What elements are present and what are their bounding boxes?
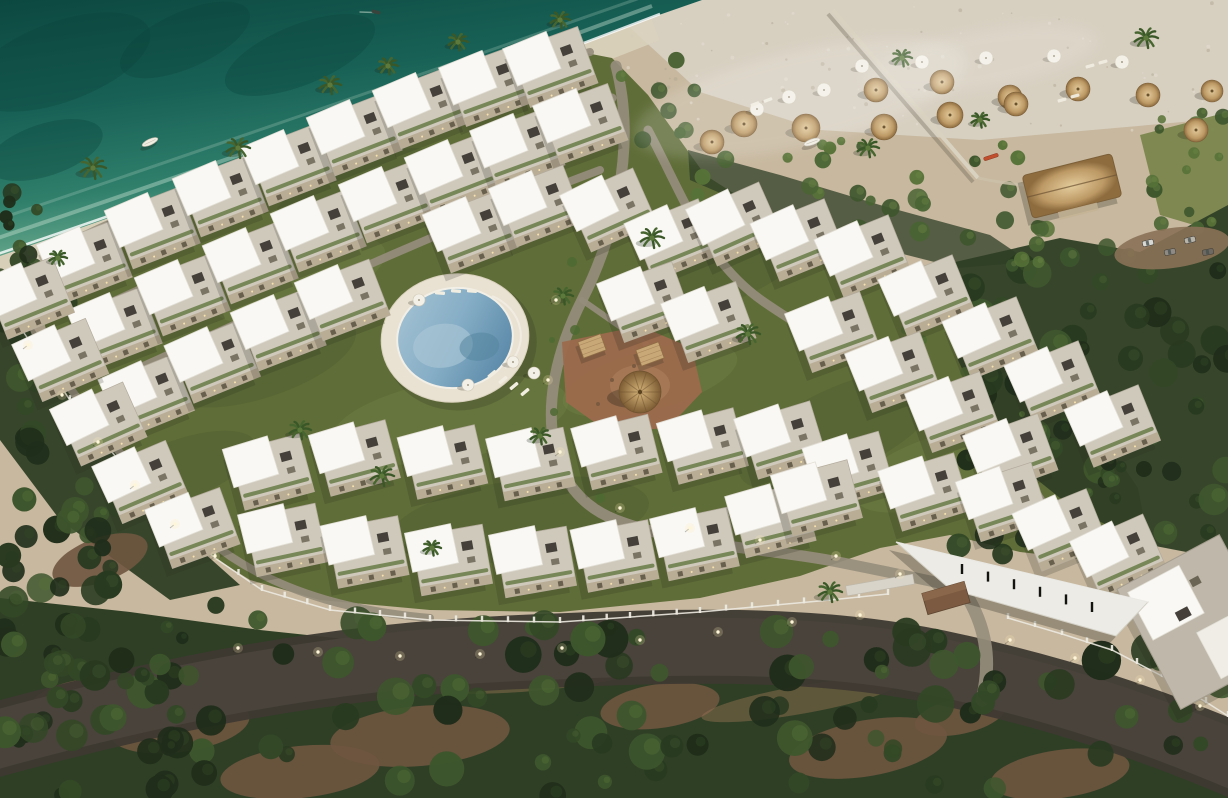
pebble-speckle: [727, 13, 731, 17]
pebble-speckle: [1060, 124, 1062, 126]
tree: [258, 734, 283, 759]
tree-highlight: [1211, 488, 1225, 502]
tree: [564, 672, 594, 702]
tree-highlight: [881, 667, 887, 673]
tree: [1136, 461, 1152, 477]
villa-window: [390, 570, 396, 576]
tree: [1088, 741, 1114, 767]
pebble-speckle: [958, 8, 962, 12]
pebble-speckle: [711, 50, 713, 52]
street-lamp: [1073, 656, 1076, 659]
tree: [75, 477, 93, 495]
umbrella-tip: [949, 114, 952, 117]
tree-highlight: [31, 717, 44, 730]
tree-highlight: [67, 511, 79, 523]
tree-highlight: [1201, 109, 1206, 114]
umbrella-tip: [883, 126, 886, 129]
pebble-speckle: [1193, 90, 1196, 93]
street-lamp: [546, 378, 549, 381]
canopy-flag-post: [961, 564, 963, 574]
palm-crown: [745, 331, 750, 336]
tree-highlight: [1125, 708, 1136, 719]
palm-crown: [90, 165, 95, 170]
fence-post: [777, 600, 779, 606]
villa-window: [265, 567, 271, 573]
tree-highlight: [8, 221, 13, 226]
street-lamp: [133, 483, 136, 486]
street-lamp: [558, 450, 561, 453]
street-lamp: [26, 343, 29, 346]
umbrella-tip: [1211, 90, 1214, 93]
tree: [15, 428, 44, 457]
street-lamp: [898, 572, 901, 575]
tree-highlight: [658, 85, 665, 92]
pebble-speckle: [913, 6, 915, 8]
tree-highlight: [585, 626, 601, 642]
fence-post: [606, 614, 608, 620]
tree-highlight: [1120, 463, 1125, 468]
tree-highlight: [967, 232, 974, 239]
tree-highlight: [476, 690, 485, 699]
villa-window: [536, 584, 542, 590]
tree-highlight: [762, 700, 776, 714]
parasol-tip: [467, 384, 469, 386]
tree-highlight: [336, 651, 350, 665]
parasol-tip: [512, 361, 514, 363]
tree: [85, 517, 112, 544]
tree-highlight: [166, 622, 172, 628]
tree: [117, 672, 134, 689]
tree: [178, 665, 199, 686]
street-lamp: [1138, 678, 1141, 681]
tree-highlight: [285, 748, 292, 755]
tree-highlight: [889, 202, 897, 210]
street-lamp: [560, 646, 563, 649]
tree: [996, 211, 1014, 229]
villa-window: [474, 579, 480, 585]
street-lamp: [236, 646, 239, 649]
palm-crown: [865, 145, 870, 150]
aerial-site-svg: [0, 0, 1228, 798]
street-lamp: [638, 638, 641, 641]
pebble-speckle: [627, 66, 630, 69]
tree-highlight: [820, 737, 832, 749]
tree-highlight: [69, 724, 83, 738]
plaza-furniture: [596, 402, 600, 406]
street-lamp: [60, 393, 63, 396]
pebble-speckle: [920, 31, 922, 33]
tree-highlight: [696, 737, 706, 747]
tree: [1162, 462, 1181, 481]
pebble-speckle: [1154, 73, 1158, 77]
tree-highlight: [1017, 152, 1024, 159]
tree-highlight: [58, 580, 67, 589]
tree-highlight: [1172, 738, 1181, 747]
tree-highlight: [822, 154, 829, 161]
tree-highlight: [422, 677, 433, 688]
pebble-speckle: [695, 74, 698, 77]
tree-highlight: [2, 721, 16, 735]
fence-post: [533, 617, 535, 623]
tree-highlight: [100, 508, 107, 515]
fence-post: [1136, 658, 1138, 664]
tree: [884, 739, 902, 757]
tree-highlight: [817, 189, 823, 195]
tree: [1184, 207, 1194, 217]
tree-highlight: [1186, 167, 1190, 171]
villa-window: [308, 558, 314, 564]
fence-post: [803, 597, 805, 603]
pebble-speckle: [1030, 123, 1032, 125]
tree-highlight: [1172, 320, 1185, 333]
tree-highlight: [957, 537, 968, 548]
tree-highlight: [918, 224, 927, 233]
tree-highlight: [181, 633, 187, 639]
tree: [788, 772, 809, 793]
street-lamp: [213, 554, 216, 557]
tree-highlight: [974, 157, 979, 162]
umbrella-tip: [1195, 129, 1198, 132]
tree-highlight: [1068, 250, 1077, 259]
villa: [486, 520, 577, 605]
tree-highlight: [202, 764, 214, 776]
fence-post: [481, 616, 483, 622]
tree-highlight: [541, 679, 555, 693]
hedge-bush: [570, 325, 580, 335]
pebble-speckle: [1192, 88, 1195, 91]
tree-highlight: [1087, 305, 1095, 313]
palm-crown: [297, 427, 302, 432]
tree-highlight: [1114, 494, 1119, 499]
fence-post: [379, 610, 381, 616]
villa-window: [556, 482, 562, 488]
tree-highlight: [1218, 154, 1222, 158]
tree-highlight: [550, 786, 562, 798]
tree-highlight: [1195, 401, 1202, 408]
villa-window: [677, 571, 683, 577]
pebble-speckle: [762, 42, 764, 44]
tree-highlight: [809, 180, 817, 188]
tree-highlight: [22, 491, 33, 502]
pebble-speckle: [916, 123, 919, 126]
fence-post: [699, 607, 701, 613]
tree-highlight: [397, 770, 410, 783]
tree: [917, 685, 954, 722]
tree-highlight: [572, 730, 578, 736]
pebble-speckle: [730, 56, 734, 60]
tree-highlight: [840, 138, 844, 142]
tree: [429, 751, 464, 786]
tree-highlight: [370, 616, 383, 629]
tree: [207, 597, 224, 614]
street-lamp: [1008, 638, 1011, 641]
tree-highlight: [256, 613, 265, 622]
palm-crown: [557, 17, 562, 22]
tree: [81, 576, 111, 606]
pebble-speckle: [792, 12, 795, 15]
fence-post: [582, 615, 584, 621]
fence-post: [404, 613, 406, 619]
tree-highlight: [10, 590, 24, 604]
hedge-bush: [567, 257, 577, 267]
tree-highlight: [1160, 218, 1167, 225]
fence-post: [237, 569, 239, 575]
tree-highlight: [157, 779, 170, 792]
villa: [402, 518, 493, 603]
pebble-speckle: [1206, 45, 1210, 49]
tree: [1098, 238, 1116, 256]
palm-crown: [560, 293, 565, 298]
fence-post: [725, 605, 727, 611]
street-lamp: [96, 440, 99, 443]
tree: [651, 664, 669, 682]
fence-post: [455, 615, 457, 621]
palm-crown: [827, 589, 832, 594]
street-lamp: [758, 538, 761, 541]
hedge-bush: [550, 408, 558, 416]
palm-crown: [55, 255, 60, 260]
pebble-speckle: [1106, 66, 1108, 68]
tree-highlight: [148, 742, 160, 754]
palm-crown: [379, 473, 384, 478]
villa-window: [430, 586, 436, 592]
pebble-speckle: [674, 77, 678, 81]
pebble-speckle: [1202, 101, 1204, 103]
pebble-speckle: [701, 42, 704, 45]
tree-highlight: [909, 633, 926, 650]
street-lamp: [618, 506, 621, 509]
tree-highlight: [1211, 218, 1216, 223]
roof-unit: [461, 540, 473, 551]
tree-highlight: [53, 655, 63, 665]
tree-highlight: [168, 741, 176, 749]
tree-highlight: [1159, 126, 1163, 130]
plaza-furniture: [610, 378, 614, 382]
fence-post: [652, 610, 654, 616]
pebble-speckle: [1002, 13, 1004, 15]
pebble-speckle: [1210, 1, 1214, 5]
palm-crown: [649, 235, 654, 240]
tree-highlight: [11, 186, 19, 194]
tree-highlight: [393, 683, 410, 700]
palm-crown: [327, 82, 332, 87]
parasol-tip: [533, 372, 535, 374]
tree-highlight: [24, 528, 34, 538]
tree-highlight: [621, 72, 626, 77]
tree-highlight: [1207, 526, 1214, 533]
street-lamp: [554, 298, 557, 301]
canopy-flag-post: [1013, 579, 1015, 589]
tree: [273, 643, 295, 665]
fence-post: [559, 617, 561, 623]
tree-highlight: [916, 172, 923, 179]
fence-post: [329, 605, 331, 611]
tree-highlight: [1135, 307, 1146, 318]
villa-window: [720, 562, 726, 568]
tree-highlight: [969, 277, 982, 290]
villa-window: [558, 581, 564, 587]
street-lamp: [1198, 704, 1201, 707]
tree-highlight: [1021, 254, 1028, 261]
tree-highlight: [39, 577, 52, 590]
tree-highlight: [1151, 177, 1157, 183]
tree-highlight: [1200, 358, 1208, 366]
roof-unit: [545, 542, 557, 553]
tree-highlight: [933, 778, 941, 786]
tree-highlight: [774, 619, 789, 634]
tree-highlight: [933, 632, 944, 643]
tree-highlight: [874, 651, 885, 662]
tree-highlight: [1109, 476, 1115, 482]
street-lamp: [173, 522, 176, 525]
canopy-flag-post: [1065, 594, 1067, 604]
tree-highlight: [542, 756, 549, 763]
tree: [433, 696, 462, 725]
street-lamp: [316, 650, 319, 653]
street-lamp: [688, 526, 691, 529]
tree-highlight: [1154, 301, 1167, 314]
tree-highlight: [1163, 524, 1174, 535]
palm-crown: [235, 145, 240, 150]
tree: [3, 196, 16, 209]
fence-post: [676, 609, 678, 615]
pebble-speckle: [1207, 49, 1210, 52]
tree-highlight: [644, 738, 660, 754]
pebble-speckle: [1011, 12, 1013, 14]
street-lamp: [398, 654, 401, 657]
tree: [60, 613, 85, 638]
tree: [861, 696, 878, 713]
tree-highlight: [617, 656, 629, 668]
tree-highlight: [1128, 349, 1139, 360]
pebble-speckle: [785, 21, 787, 23]
tree-highlight: [1035, 238, 1042, 245]
villa-window: [699, 566, 705, 572]
pebble-speckle: [664, 68, 666, 70]
tree: [1044, 669, 1075, 700]
tree-highlight: [629, 705, 642, 718]
villa-window: [513, 491, 519, 497]
pebble-speckle: [1154, 39, 1157, 42]
villa-window: [618, 578, 624, 584]
villa-window: [287, 562, 293, 568]
tree-highlight: [1051, 441, 1060, 450]
villa-window: [514, 588, 520, 594]
fence-post: [306, 598, 308, 604]
tree-highlight: [1099, 276, 1107, 284]
villa-window: [347, 579, 353, 585]
tree-highlight: [208, 710, 222, 724]
pebble-speckle: [1156, 45, 1158, 47]
villa-window: [452, 582, 458, 588]
aerial-resort-render: [0, 0, 1228, 798]
palm-crown: [429, 545, 434, 550]
pebble-speckle: [1168, 111, 1170, 113]
tree: [332, 703, 359, 730]
villa-window: [640, 574, 646, 580]
tree: [822, 631, 839, 648]
canopy-flag-post: [987, 572, 989, 582]
pebble-speckle: [1142, 72, 1144, 74]
fence-post: [887, 589, 889, 595]
tree-highlight: [27, 248, 35, 256]
tree-highlight: [922, 198, 929, 205]
pebble-speckle: [1058, 18, 1060, 20]
fence-post: [429, 615, 431, 621]
pebble-speckle: [1131, 129, 1134, 132]
fence-post: [629, 612, 631, 618]
tree-highlight: [452, 678, 465, 691]
tree-highlight: [12, 635, 24, 647]
pebble-speckle: [680, 23, 682, 25]
tree-highlight: [36, 206, 41, 211]
tree-highlight: [607, 623, 614, 630]
tree-highlight: [1002, 142, 1006, 146]
palm-crown: [977, 117, 982, 122]
palm-crown: [455, 39, 460, 44]
tree: [833, 706, 857, 730]
tree-highlight: [857, 187, 865, 195]
tree-highlight: [111, 708, 123, 720]
umbrella-tip: [1077, 88, 1080, 91]
tree-highlight: [56, 689, 66, 699]
fence-post: [261, 585, 263, 591]
pebble-speckle: [667, 85, 671, 89]
tree-highlight: [520, 641, 536, 657]
plaza-furniture: [632, 364, 636, 368]
tree: [695, 169, 711, 185]
street-lamp: [478, 652, 481, 655]
tree: [668, 52, 685, 69]
palm-crown: [385, 63, 390, 68]
gazebo-peak: [638, 390, 642, 394]
pebble-speckle: [771, 22, 773, 24]
villa-window: [368, 574, 374, 580]
street-lamp: [834, 554, 837, 557]
tree-highlight: [109, 562, 116, 569]
canopy-flag-post: [1091, 602, 1093, 612]
tree-highlight: [987, 683, 997, 693]
tree: [1193, 737, 1208, 752]
tree-highlight: [141, 669, 148, 676]
tree-highlight: [24, 400, 32, 408]
street-lamp: [790, 620, 793, 623]
fence-post: [1111, 645, 1113, 651]
tree: [1149, 358, 1178, 387]
fence-post: [354, 608, 356, 614]
villa-window: [535, 486, 541, 492]
tree-highlight: [1161, 116, 1165, 120]
street-lamp: [858, 613, 861, 616]
pebble-speckle: [1143, 77, 1145, 79]
tree-highlight: [792, 725, 808, 741]
tree-highlight: [92, 664, 106, 678]
tree: [789, 654, 814, 679]
tree: [592, 733, 613, 754]
tree-highlight: [787, 154, 792, 159]
fence-post: [751, 602, 753, 608]
parasol-tip: [1121, 61, 1123, 63]
tree: [149, 654, 170, 675]
pebble-speckle: [787, 23, 789, 25]
canopy-flag-post: [1039, 587, 1041, 597]
tree: [866, 196, 876, 206]
tree-highlight: [70, 693, 80, 703]
hedge-bush: [549, 337, 555, 343]
pebble-speckle: [765, 42, 768, 45]
fence-post: [284, 592, 286, 598]
street-lamp: [716, 630, 719, 633]
